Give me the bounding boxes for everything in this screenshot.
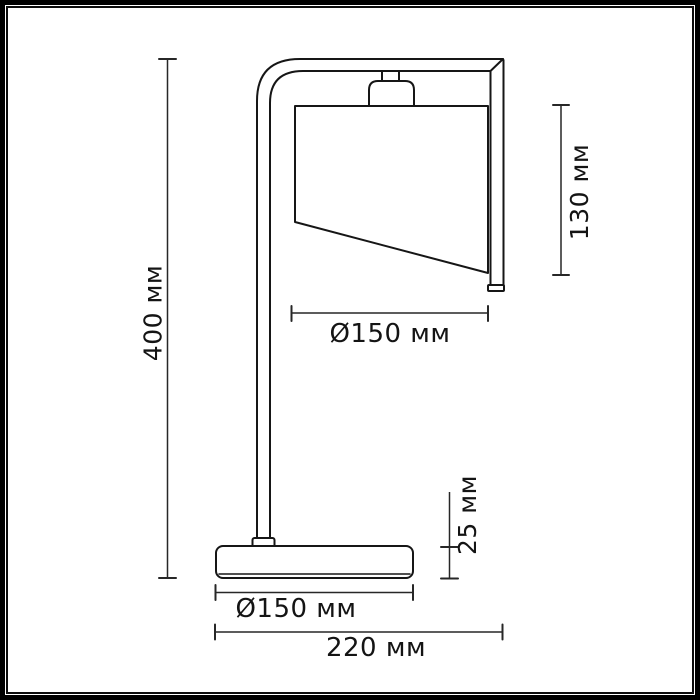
dimension-label-base-diameter: Ø150 мм [235, 594, 356, 624]
socket-body [369, 81, 414, 108]
dimension-label-shade-height: 130 мм [565, 144, 594, 240]
dimension-shade-height: 130 мм [553, 105, 594, 275]
dimension-label-base-height: 25 мм [453, 475, 482, 555]
dimension-label-shade-diameter: Ø150 мм [329, 319, 450, 349]
dimension-label-total-height: 400 мм [138, 265, 167, 361]
lamp-dimension-diagram: 400 мм 130 мм Ø150 мм 25 мм [0, 0, 700, 700]
dimension-base-height: 25 мм [441, 475, 482, 578]
lampshade-shape [295, 106, 488, 273]
dimension-total-height: 400 мм [138, 59, 176, 578]
drawing-canvas: 400 мм 130 мм Ø150 мм 25 мм [0, 0, 700, 700]
right-bar-end-cap [488, 285, 504, 291]
dimension-shade-diameter: Ø150 мм [292, 306, 489, 349]
dimension-total-depth: 220 мм [215, 625, 503, 664]
socket-neck [382, 71, 399, 81]
dimension-label-total-depth: 220 мм [326, 633, 426, 663]
corner-bevel-line [491, 59, 504, 71]
dimension-base-diameter: Ø150 мм [216, 585, 414, 624]
lamp-base-shape [216, 546, 413, 578]
